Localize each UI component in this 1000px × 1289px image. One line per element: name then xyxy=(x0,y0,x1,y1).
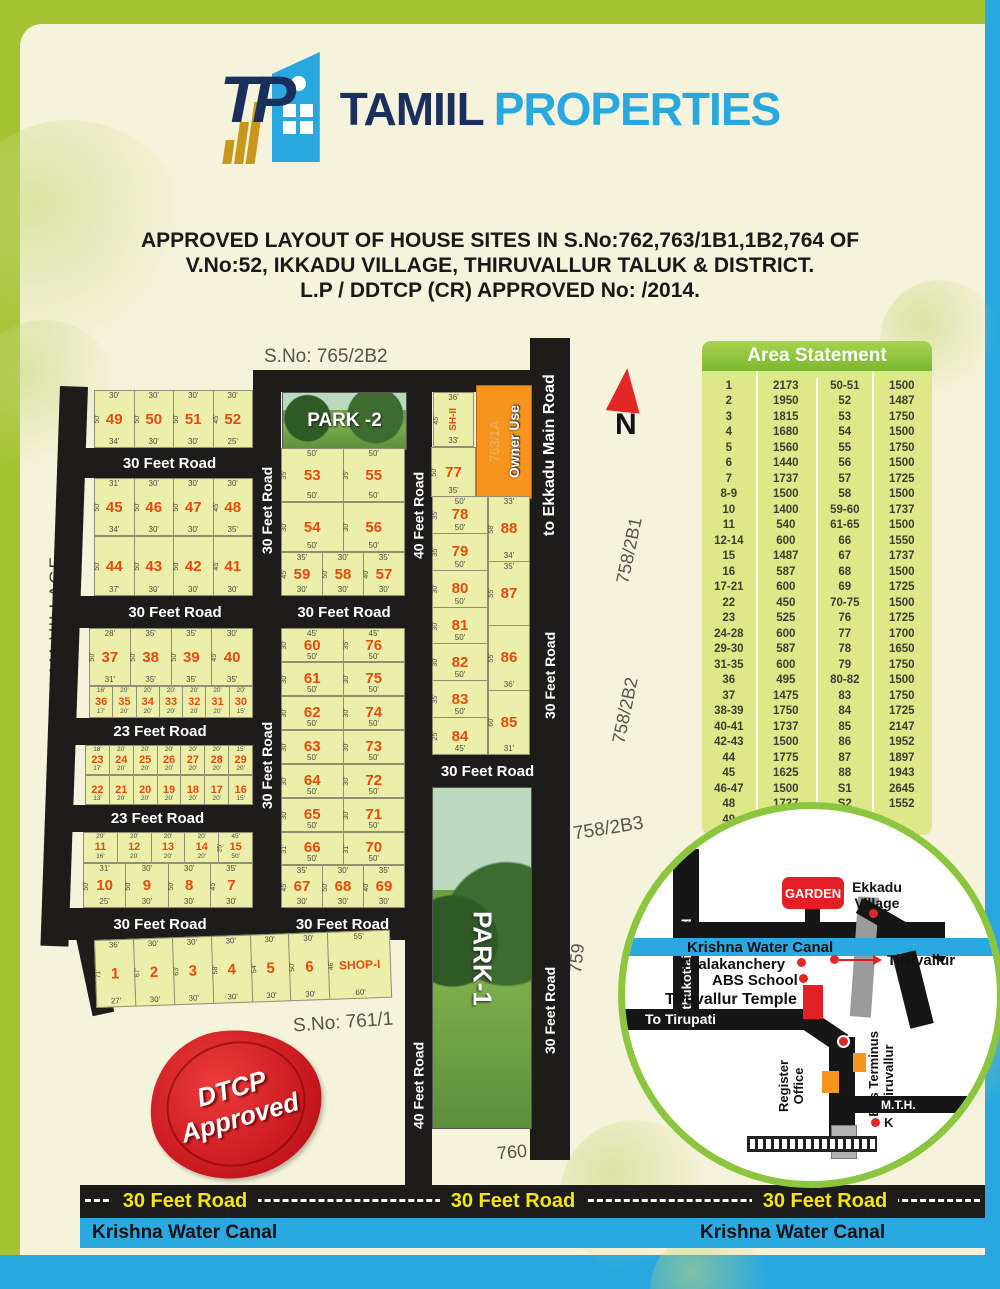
area-sqft-value: 1950 xyxy=(756,395,816,407)
plot-number: 29 xyxy=(234,755,246,766)
plot-side-dim: 45' xyxy=(433,415,440,424)
plot-bottom-dim: 20' xyxy=(167,709,175,716)
park-1-label: PARK-1 xyxy=(467,911,498,1006)
area-plot-number: 48 xyxy=(702,798,756,810)
area-row: 671737 xyxy=(818,549,932,565)
abs-school-label: ABS School xyxy=(712,972,798,989)
plot-number: 12 xyxy=(128,842,140,853)
survey-758-2b3: 758/2B3 xyxy=(573,818,644,840)
logo-letters: TP xyxy=(220,66,288,132)
plot-8: 50'30'830' xyxy=(168,863,211,908)
plot-bottom-dim: 20' xyxy=(117,766,125,773)
plot-number: 6 xyxy=(305,959,314,974)
plot-top-dim: 50' xyxy=(369,450,379,458)
plot-number: 45 xyxy=(106,500,123,515)
plot-number: 72 xyxy=(365,773,382,788)
plot-bottom-dim: 60' xyxy=(355,989,366,997)
plot-number: SHOP-I xyxy=(339,958,381,971)
area-row: 571725 xyxy=(818,471,932,487)
approval-title: APPROVED LAYOUT OF HOUSE SITES IN S.No:7… xyxy=(120,228,880,303)
plot-number: 71 xyxy=(365,807,382,822)
plot-bottom-dim: 50' xyxy=(455,524,465,532)
plot-49: 50'30'4934' xyxy=(94,390,135,448)
plot-row: 45'35'5930'50'30'5830'40'35'5730' xyxy=(282,552,405,596)
area-plot-number: 66 xyxy=(818,535,872,547)
area-plot-number: 86 xyxy=(818,736,872,748)
to-tirupati-label: To Tirupati xyxy=(645,1011,716,1027)
plot-side-dim: 50' xyxy=(94,561,101,570)
area-row: 80-821500 xyxy=(818,673,932,689)
area-sqft-value: 600 xyxy=(756,628,816,640)
plot-number: 61 xyxy=(304,671,321,686)
area-sqft-value: 600 xyxy=(756,581,816,593)
plot-row: 16'3617'20'3520'20'3420'20'3320'20'3220'… xyxy=(90,686,253,718)
plot-number: 56 xyxy=(365,520,382,535)
plot-side-dim: 35' xyxy=(432,695,439,704)
plot-bottom-dim: 30' xyxy=(227,993,238,1001)
plot-bottom-dim: 30' xyxy=(184,898,194,906)
area-sqft-value: 587 xyxy=(756,566,816,578)
plot-side-dim: 54' xyxy=(251,964,258,973)
plot-bottom-dim: 50' xyxy=(369,754,379,762)
area-sqft-value: 1750 xyxy=(872,411,932,423)
plot-76: 35'45'7650' xyxy=(343,628,406,662)
area-row: 881943 xyxy=(818,766,932,782)
area-row: 561500 xyxy=(818,456,932,472)
tiruvallur-arrowhead-icon xyxy=(873,955,882,965)
area-row: 761725 xyxy=(818,611,932,627)
plot-side-dim: 30' xyxy=(281,776,288,785)
area-plot-number: 45 xyxy=(702,767,756,779)
plot-31: 20'3120' xyxy=(205,686,229,718)
plot-number: 66 xyxy=(304,840,321,855)
plot-side-dim: 35' xyxy=(432,547,439,556)
area-sqft-value: 587 xyxy=(756,643,816,655)
plot-23: 18'2317' xyxy=(85,745,110,775)
abs-school-dot xyxy=(799,974,808,983)
temple-label: Tiruvallur Temple xyxy=(665,991,797,1009)
plot-top-dim: 36' xyxy=(109,941,120,949)
area-sqft-value: 600 xyxy=(756,535,816,547)
plot-77: 50'7735' xyxy=(431,447,476,497)
plot-number: 81 xyxy=(452,618,469,633)
plot-side-dim: 58' xyxy=(212,965,219,974)
plot-bottom-dim: 33' xyxy=(448,437,458,445)
plot-side-dim: 50' xyxy=(94,502,101,511)
plot-number: 4 xyxy=(227,962,236,977)
plot-bottom-dim: 20' xyxy=(141,766,149,773)
area-sqft-value: 1680 xyxy=(756,426,816,438)
plot-side-dim: 60' xyxy=(488,718,495,727)
area-row: 23525 xyxy=(702,611,816,627)
plot-row: 30'45'6050'35'45'7650' xyxy=(282,628,405,662)
plot-24: 20'2420' xyxy=(109,745,134,775)
plot-column: 35'50'7850'35'7950'30'8050'30'8150'30'82… xyxy=(432,497,488,755)
plot-85: 60'8531' xyxy=(488,690,530,756)
plot-row: 50'28'3731'50'35'3835'50'35'3935'45'30'4… xyxy=(90,628,253,686)
plot-number: 42 xyxy=(185,559,202,574)
area-plot-number: 70-75 xyxy=(818,597,872,609)
plot-62: 30'6250' xyxy=(281,696,344,730)
plot-number: 82 xyxy=(452,655,469,670)
plot-top-dim: 20' xyxy=(117,747,125,754)
plot-bottom-dim: 20' xyxy=(213,709,221,716)
plot-row: 30'6350'30'7350' xyxy=(282,730,405,764)
plot-number: 78 xyxy=(452,507,469,522)
plot-bottom-dim: 31' xyxy=(105,676,115,684)
plot-bottom-dim: 30' xyxy=(228,586,238,594)
plot-side-dim: 46' xyxy=(328,961,335,970)
plot-bottom-dim: 35' xyxy=(145,676,155,684)
plot-bottom-dim: 30' xyxy=(150,996,161,1004)
plot-number: 34 xyxy=(142,697,154,708)
plot-bottom-dim: 30' xyxy=(297,586,307,594)
plot-side-dim: 30' xyxy=(343,742,350,751)
plot-side-dim: 35' xyxy=(343,640,350,649)
area-sqft-value: 1500 xyxy=(872,519,932,531)
area-sqft-value: 1737 xyxy=(756,721,816,733)
area-row: 36495 xyxy=(702,673,816,689)
plot-number: 55 xyxy=(365,468,382,483)
plot-number: 11 xyxy=(95,842,107,853)
plot-number: 23 xyxy=(91,755,103,766)
plot-bottom-dim: 20' xyxy=(212,796,220,803)
plot-top-dim: 30' xyxy=(227,630,237,638)
plot-top-dim: 30' xyxy=(228,480,238,488)
plot-top-dim: 30' xyxy=(264,936,275,944)
plot-top-dim: 30' xyxy=(188,480,198,488)
area-plot-number: 11 xyxy=(702,519,756,531)
plot-side-dim: 45' xyxy=(211,652,218,661)
area-row: 41680 xyxy=(702,425,816,441)
plot-37: 50'28'3731' xyxy=(89,628,131,686)
plot-number: 84 xyxy=(452,729,469,744)
area-plot-number: 16 xyxy=(702,566,756,578)
plot-top-dim: 35' xyxy=(226,865,236,873)
area-row: S12645 xyxy=(818,781,932,797)
area-sqft-value: 1440 xyxy=(756,457,816,469)
plot-75: 30'7550' xyxy=(343,662,406,696)
plot-number: 67 xyxy=(294,879,311,894)
area-sqft-value: 1500 xyxy=(756,736,816,748)
plot-top-dim: 20' xyxy=(213,688,221,695)
area-sqft-value: 2645 xyxy=(872,783,932,795)
plot-55: 35'50'5550' xyxy=(343,448,406,502)
plot-bottom-dim: 50' xyxy=(307,542,317,550)
plot-27: 20'2720' xyxy=(180,745,205,775)
plot-number: 17 xyxy=(211,785,223,796)
area-sqft-value: 1737 xyxy=(872,504,932,516)
plot-number: 15 xyxy=(229,842,241,853)
area-plot-number: 8-9 xyxy=(702,488,756,500)
area-plot-number: 67 xyxy=(818,550,872,562)
title-line-1: APPROVED LAYOUT OF HOUSE SITES IN S.No:7… xyxy=(120,228,880,253)
area-row: 59-601737 xyxy=(818,502,932,518)
plot-side-dim: 35' xyxy=(281,470,288,479)
road-label: 30 Feet Road xyxy=(95,596,255,628)
plot-row: 30'6150'30'7550' xyxy=(282,662,405,696)
road-label: 30 Feet Road xyxy=(532,620,568,730)
area-plot-number: 36 xyxy=(702,674,756,686)
plot-side-dim: 45' xyxy=(213,414,220,423)
area-sqft-value: 1750 xyxy=(872,442,932,454)
plot-number: 86 xyxy=(501,650,518,665)
plot-bottom-dim: 45' xyxy=(455,745,465,753)
area-row: 541500 xyxy=(818,425,932,441)
title-line-3: L.P / DDTCP (CR) APPROVED No: /2014. xyxy=(120,278,880,303)
area-sqft-value: 1775 xyxy=(756,752,816,764)
plot-84: 25'8445' xyxy=(432,717,488,755)
plot-22: 2213' xyxy=(85,775,110,805)
plot-side-dim: 25' xyxy=(432,732,439,741)
plot-side-dim: 30' xyxy=(432,584,439,593)
plot-row: 30'6250'30'7450' xyxy=(282,696,405,730)
area-sqft-value: 1725 xyxy=(872,612,932,624)
plot-number: 24 xyxy=(115,755,127,766)
plot-side-dim: 30' xyxy=(432,658,439,667)
plot-bottom-dim: 30' xyxy=(188,994,199,1002)
plot-side-dim: 45' xyxy=(213,561,220,570)
plot-17: 1720' xyxy=(204,775,229,805)
plot-number: 20 xyxy=(139,785,151,796)
plot-number: 30 xyxy=(235,697,247,708)
plot-sh2: 45'36'SH-II33' xyxy=(434,392,474,447)
thalakanchery-dot xyxy=(797,958,806,967)
plot-6: 50'30'630' xyxy=(288,932,330,1001)
plot-side-dim: 30' xyxy=(281,522,288,531)
plot-side-dim: 30' xyxy=(432,621,439,630)
plot-number: 32 xyxy=(188,697,200,708)
plot-side-dim: 40' xyxy=(363,882,370,891)
plot-bottom-dim: 20' xyxy=(189,766,197,773)
plot-number: 1 xyxy=(111,966,120,981)
road-label: 30 Feet Road xyxy=(92,448,247,478)
area-sqft-value: 1500 xyxy=(872,457,932,469)
plot-2: 67'30'230' xyxy=(133,937,175,1006)
mth-road-label: M.T.H. xyxy=(881,1098,916,1112)
road-label: 23 Feet Road xyxy=(70,805,245,832)
plot-top-dim: 45' xyxy=(231,834,239,841)
plot-35: 20'3520' xyxy=(112,686,136,718)
plot-48: 45'30'4835' xyxy=(213,478,254,536)
area-row: 661550 xyxy=(818,533,932,549)
owner-use-survey: 763/1A xyxy=(487,421,502,462)
plot-number: 5 xyxy=(266,960,275,975)
plot-top-dim: 20' xyxy=(190,688,198,695)
area-plot-number: 59-60 xyxy=(818,504,872,516)
plot-bottom-dim: 30' xyxy=(188,586,198,594)
area-plot-number: 17-21 xyxy=(702,581,756,593)
plot-number: 3 xyxy=(188,963,197,978)
plot-side-dim: 30' xyxy=(343,776,350,785)
plot-bottom-dim: 50' xyxy=(307,653,317,661)
plot-66: 31'6650' xyxy=(281,832,344,865)
plot-bottom-dim: 50' xyxy=(369,492,379,500)
plot-number: 18 xyxy=(187,785,199,796)
plot-bottom-dim: 16' xyxy=(96,854,104,861)
plot-26: 20'2620' xyxy=(157,745,182,775)
area-row: 771700 xyxy=(818,626,932,642)
plot-4: 58'30'430' xyxy=(211,935,253,1004)
plot-38: 50'35'3835' xyxy=(130,628,172,686)
plot-14: 20'1420' xyxy=(184,832,219,863)
plot-side-dim: 30' xyxy=(281,674,288,683)
plot-side-dim: 63' xyxy=(173,966,180,975)
area-plot-number: 77 xyxy=(818,628,872,640)
plot-bottom-dim: 20' xyxy=(165,796,173,803)
plot-65: 30'6550' xyxy=(281,798,344,832)
canal-label: Krishna Water Canal xyxy=(700,1220,885,1246)
plot-top-dim: 15' xyxy=(236,747,244,754)
plot-top-dim: 30' xyxy=(187,938,198,946)
plot-34: 20'3420' xyxy=(136,686,160,718)
plot-number: 37 xyxy=(102,650,119,665)
plot-bottom-dim: 50' xyxy=(369,788,379,796)
plot-number: 50 xyxy=(145,412,162,427)
plot-36: 16'3617' xyxy=(89,686,113,718)
plot-side-dim: 50' xyxy=(431,467,438,476)
plot-sh-ii: 45'36'SH-II33' xyxy=(433,392,474,447)
plot-number: 36 xyxy=(95,697,107,708)
plot-side-dim: 58' xyxy=(488,524,495,533)
area-plot-number: 46-47 xyxy=(702,783,756,795)
plot-number: 64 xyxy=(304,773,321,788)
plot-73: 30'7350' xyxy=(343,730,406,764)
plot-bottom-dim: 50' xyxy=(307,686,317,694)
area-row: 551750 xyxy=(818,440,932,456)
plot-top-dim: 30' xyxy=(338,867,348,875)
plot-bottom-dim: 20' xyxy=(190,709,198,716)
plot-number: 33 xyxy=(165,697,177,708)
area-sqft-value: 2147 xyxy=(872,721,932,733)
plot-number: 52 xyxy=(224,412,241,427)
area-plot-number: 1 xyxy=(702,380,756,392)
area-row: 71737 xyxy=(702,471,816,487)
area-row: 12-14600 xyxy=(702,533,816,549)
area-sqft-value: 1650 xyxy=(872,643,932,655)
plot-top-dim: 30' xyxy=(303,934,314,942)
plot-88: 58'33'8834' xyxy=(488,496,530,562)
area-row: 50-511500 xyxy=(818,378,932,394)
plot-number: 77 xyxy=(445,465,462,480)
plot-bottom-dim: 20' xyxy=(212,766,220,773)
area-row: 861952 xyxy=(818,735,932,751)
plot-row: 30'6450'30'7250' xyxy=(282,764,405,798)
plot-top-dim: 20' xyxy=(96,834,104,841)
area-row: 521487 xyxy=(818,394,932,410)
plot-52: 45'30'5225' xyxy=(213,390,254,448)
plot-bottom-dim: 31' xyxy=(504,745,514,753)
plot-63: 30'6350' xyxy=(281,730,344,764)
area-row: 831750 xyxy=(818,688,932,704)
area-sqft-value: 1750 xyxy=(756,705,816,717)
plot-number: 7 xyxy=(227,878,235,893)
plot-number: SH-II xyxy=(449,408,459,431)
plot-row: 50'4437'50'4330'50'4230'45'4130' xyxy=(95,536,253,596)
plot-number: 49 xyxy=(106,412,123,427)
logo-icon: TP xyxy=(220,52,320,166)
plot-top-dim: 20' xyxy=(143,688,151,695)
plot-row: 30'5450'30'5650' xyxy=(282,502,405,552)
area-sqft-value: 1500 xyxy=(872,380,932,392)
plot-shop-i: 46'55'SHOP-I60' xyxy=(327,930,392,1000)
plot-bottom-dim: 20' xyxy=(141,796,149,803)
plot-bottom-dim: 35' xyxy=(448,487,458,495)
area-row: 531750 xyxy=(818,409,932,425)
plot-top-dim: 55' xyxy=(353,933,364,941)
area-plot-number: 31-35 xyxy=(702,659,756,671)
plot-58: 50'30'5830' xyxy=(322,552,364,596)
plot-bottom-dim: 50' xyxy=(307,492,317,500)
plot-bottom-dim: 17' xyxy=(93,766,101,773)
plot-side-dim: 50' xyxy=(173,502,180,511)
plot-side-dim: 30' xyxy=(343,708,350,717)
plot-bottom-dim: 50' xyxy=(455,708,465,716)
plot-bottom-dim: 36' xyxy=(504,681,514,689)
plot-top-dim: 31' xyxy=(109,480,119,488)
area-plot-number: 76 xyxy=(818,612,872,624)
tiruvallur-dot xyxy=(830,955,839,964)
plot-30: 20'3015' xyxy=(229,686,253,718)
area-sqft-value: 540 xyxy=(756,519,816,531)
register-office-marker xyxy=(822,1071,839,1093)
temple-marker xyxy=(803,985,823,1019)
plot-top-dim: 28' xyxy=(105,630,115,638)
mth-road xyxy=(853,1096,993,1113)
survey-758-2b2: 758/2B2 xyxy=(592,700,659,721)
plot-row: 71'36'127'67'30'230'63'30'330'58'30'430'… xyxy=(95,930,392,1008)
plot-bottom-dim: 37' xyxy=(109,586,119,594)
plot-top-dim: 20' xyxy=(165,747,173,754)
plot-83: 35'8350' xyxy=(432,680,488,718)
plot-15: 25'45'1550' xyxy=(218,832,253,863)
plot-bottom-dim: 30' xyxy=(226,898,236,906)
area-sqft-value: 600 xyxy=(756,659,816,671)
plot-78: 35'50'7850' xyxy=(432,496,488,534)
location-map: Uthukottai Road Krishna Water Canal To T… xyxy=(618,802,1000,1188)
plot-side-dim: 50' xyxy=(322,569,329,578)
plot-side-dim: 30' xyxy=(343,674,350,683)
plot-9: 50'30'930' xyxy=(125,863,168,908)
plot-side-dim: 31' xyxy=(343,844,350,853)
plot-42: 50'4230' xyxy=(173,536,214,596)
plot-51: 50'30'5130' xyxy=(173,390,214,448)
plot-row: 31'6650'31'7050' xyxy=(282,832,405,865)
area-sqft-value: 1500 xyxy=(872,597,932,609)
canal-label: Krishna Water Canal xyxy=(92,1220,277,1246)
plot-bottom-dim: 50' xyxy=(307,788,317,796)
plot-top-dim: 16' xyxy=(97,688,105,695)
plot-number: 79 xyxy=(452,544,469,559)
plot-61: 30'6150' xyxy=(281,662,344,696)
area-sqft-value: 1500 xyxy=(756,783,816,795)
area-plot-number: 84 xyxy=(818,705,872,717)
plot-number: 57 xyxy=(376,567,393,582)
plot-82: 30'8250' xyxy=(432,643,488,681)
plot-top-dim: 20' xyxy=(237,688,245,695)
area-plot-number: 50-51 xyxy=(818,380,872,392)
plot-side-dim: 50' xyxy=(89,652,96,661)
road-label: 30 Feet Road xyxy=(435,755,540,787)
area-sqft-value: 1737 xyxy=(872,550,932,562)
area-sqft-value: 2173 xyxy=(756,380,816,392)
area-plot-number: 61-65 xyxy=(818,519,872,531)
ekkadu-village-label: Ekkadu Village xyxy=(847,879,907,911)
plot-top-dim: 20' xyxy=(167,688,175,695)
plot-bottom-dim: 34' xyxy=(109,438,119,446)
plot-number: 48 xyxy=(224,500,241,515)
area-plot-number: 58 xyxy=(818,488,872,500)
